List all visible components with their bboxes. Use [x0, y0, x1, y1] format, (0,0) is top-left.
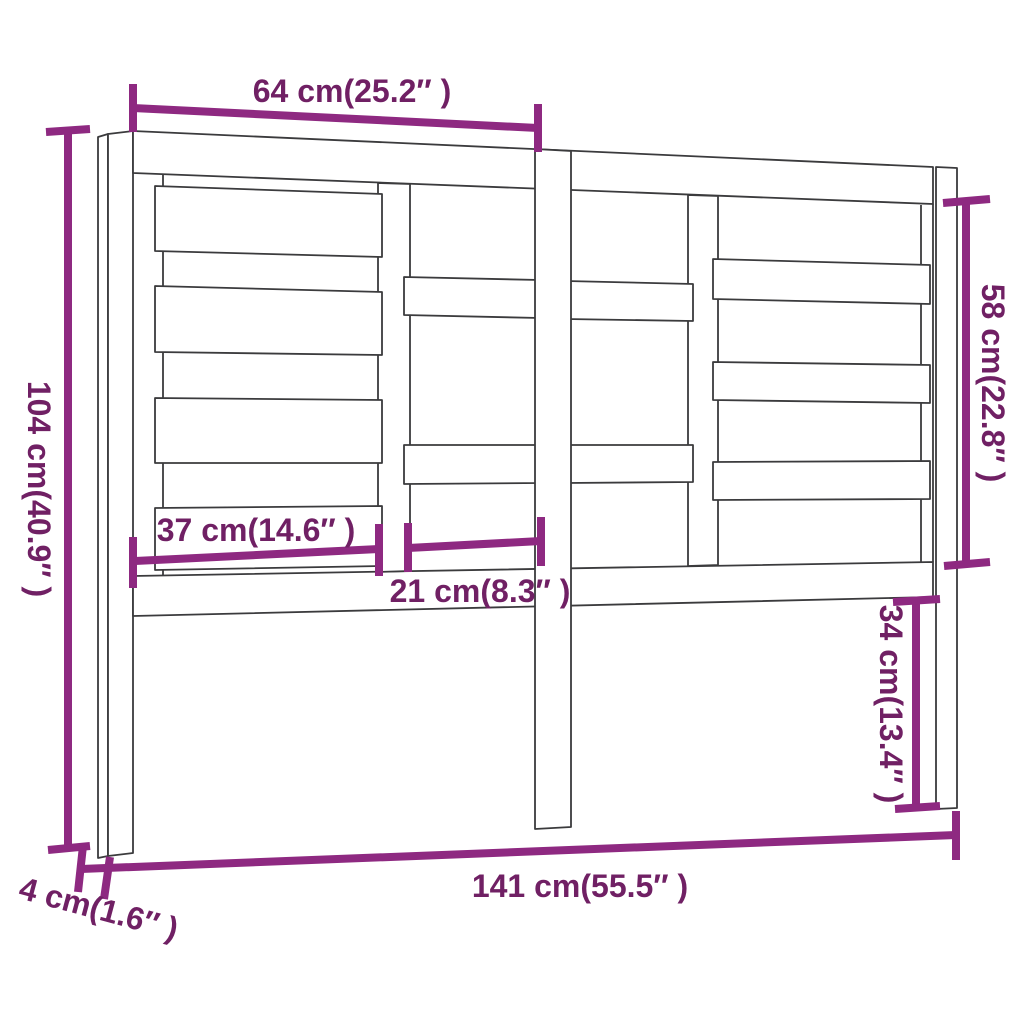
dimension-line [81, 835, 956, 869]
slat [566, 445, 693, 483]
slat [713, 259, 930, 304]
dim-center-panel-width: 21 cm(8.3″ ) [390, 517, 571, 609]
slat [155, 398, 382, 463]
dimension-cap [943, 199, 990, 203]
center-stile-leg [535, 149, 571, 829]
dim-lower-right-height: 34 cm(13.4″ ) [873, 599, 940, 809]
dimension-label: 58 cm(22.8″ ) [975, 284, 1011, 483]
slat [404, 277, 540, 318]
left-post-side-face [98, 134, 108, 858]
dimension-label: 104 cm(40.9″ ) [21, 381, 57, 597]
dimension-cap [893, 599, 940, 602]
dimension-cap [895, 806, 940, 809]
right-post [936, 167, 957, 809]
dimension-line [133, 108, 538, 128]
slat [155, 286, 382, 355]
left-post-front-face [108, 131, 133, 856]
dimension-label: 141 cm(55.5″ ) [472, 868, 688, 904]
headboard-drawing [98, 131, 957, 858]
dim-overall-height: 104 cm(40.9″ ) [21, 129, 90, 850]
dimension-label: 4 cm(1.6″ ) [15, 870, 182, 947]
headboard-dimension-diagram: 64 cm(25.2″ ) 104 cm(40.9″ ) 58 cm(22.8″… [0, 0, 1024, 1024]
slat [404, 445, 540, 484]
slat [713, 461, 930, 500]
dimension-label: 37 cm(14.6″ ) [157, 512, 356, 548]
dim-overall-width: 141 cm(55.5″ ) [78, 811, 956, 904]
dimension-label: 34 cm(13.4″ ) [873, 605, 909, 804]
diagram-canvas: 64 cm(25.2″ ) 104 cm(40.9″ ) 58 cm(22.8″… [0, 0, 1024, 1024]
dimension-line [408, 541, 541, 548]
dimension-cap [944, 562, 990, 566]
dimension-cap [46, 129, 90, 132]
dimension-label: 21 cm(8.3″ ) [390, 573, 571, 609]
slat [155, 186, 382, 257]
slat [566, 281, 693, 321]
slat [713, 362, 930, 403]
dimension-label: 64 cm(25.2″ ) [253, 73, 452, 109]
